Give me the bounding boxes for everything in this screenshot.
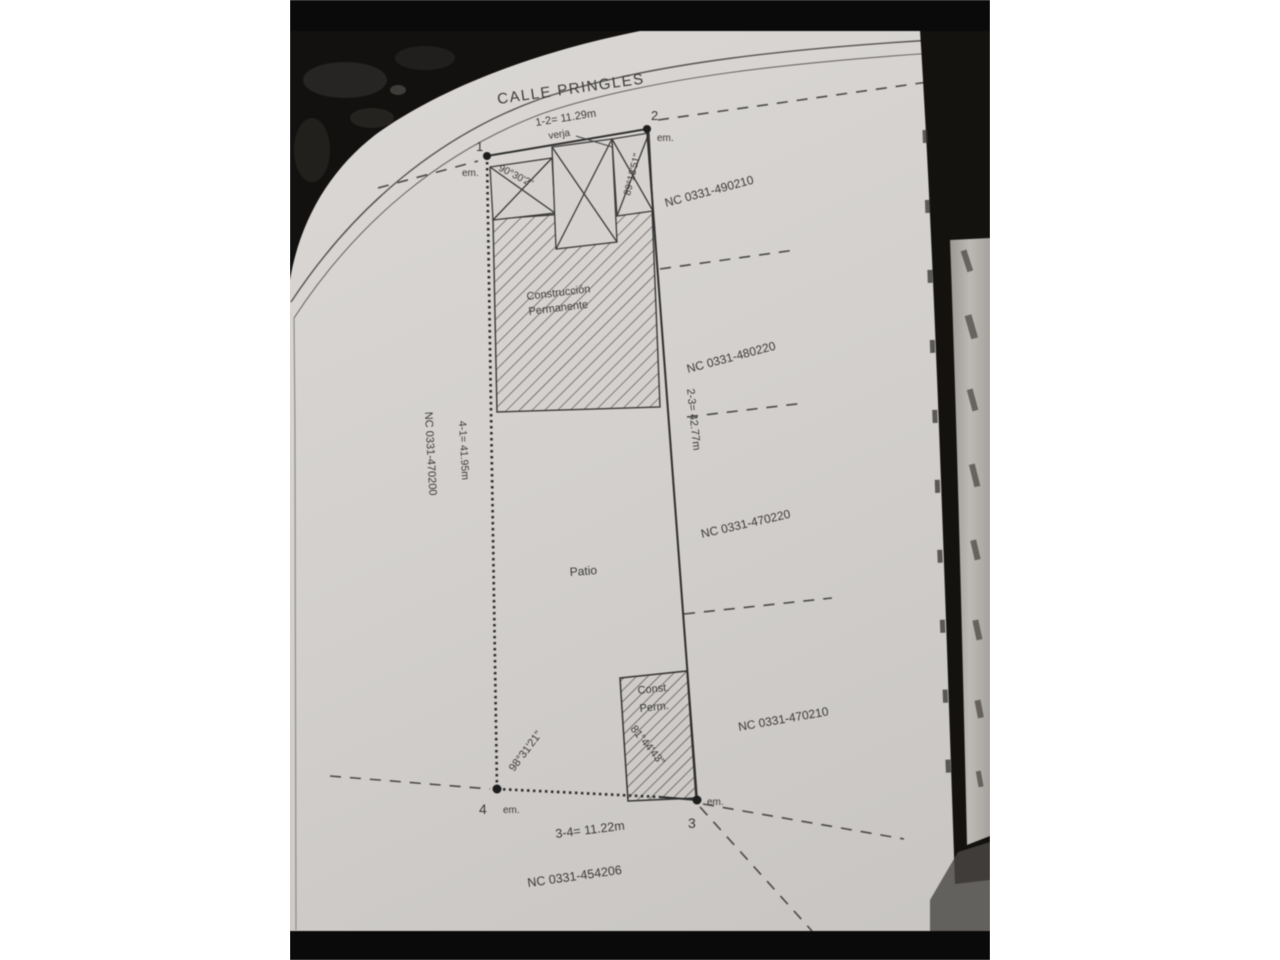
- nc-parcel-right-2: NC 0331-480220: [685, 339, 777, 376]
- corner-1-em-label: em.: [462, 168, 479, 179]
- street-name-label: CALLE PRINGLES: [496, 70, 645, 108]
- parcel-divider-dashed-1: [660, 250, 795, 269]
- nc-parcel-bottom: NC 0331-454206: [526, 863, 622, 890]
- bottom-right-shadow: [930, 842, 990, 932]
- dimension-side-3-4: 3-4= 11.22m: [555, 819, 626, 841]
- bottom-black-bar: [290, 931, 990, 960]
- corner-2-em-label: em.: [657, 133, 674, 144]
- patio-label: Patio: [569, 563, 598, 579]
- page-left-fold-line: [294, 318, 296, 930]
- nc-parcel-right-top: NC 0331-490210: [663, 173, 755, 210]
- dimension-side-1-2: 1-2= 11.29m: [535, 108, 597, 129]
- top-black-bar: [290, 0, 990, 31]
- parcel-divider-dashed-3: [684, 598, 832, 614]
- fence-label: verja: [548, 128, 572, 142]
- diagonal-dashed-from-corner-3: [700, 807, 812, 931]
- corner-4-em-label: em.: [503, 805, 520, 816]
- screenshot: CALLE PRINGLES 1-2= 11.29m verja 2-3= 42…: [0, 0, 1280, 960]
- corner-3-marker: [693, 796, 702, 805]
- angle-corner-4: 98°31'21": [507, 729, 545, 774]
- nc-parcel-right-3: NC 0331-470220: [700, 507, 793, 541]
- dimension-side-4-1: 4-1= 41.95m: [456, 421, 471, 481]
- corner-1-marker: [483, 152, 491, 160]
- corner-2-label: 2: [651, 108, 658, 123]
- corner-1-label: 1: [476, 139, 483, 154]
- parcel-divider-dashed-2: [687, 403, 805, 417]
- nc-parcel-right-4: NC 0331-470210: [737, 704, 830, 734]
- street-line-right-dashed: [658, 82, 928, 120]
- photo-dark-surround: [920, 30, 990, 932]
- corner-2-marker: [643, 125, 651, 133]
- survey-plan-drawing: CALLE PRINGLES 1-2= 11.29m verja 2-3= 42…: [290, 0, 990, 960]
- corner-4-label: 4: [479, 801, 487, 817]
- nc-parcel-left: NC 0331-470200: [422, 412, 438, 496]
- dimension-side-2-3: 2-3= 42.77m: [684, 388, 702, 451]
- corner-3-em-label: em.: [707, 797, 724, 808]
- survey-plan-photo: CALLE PRINGLES 1-2= 11.29m verja 2-3= 42…: [290, 0, 990, 960]
- rear-line-left-dashed: [330, 776, 490, 789]
- corner-3-label: 3: [688, 815, 696, 831]
- rear-line-right-dashed: [703, 804, 904, 839]
- corner-4-marker: [493, 785, 502, 794]
